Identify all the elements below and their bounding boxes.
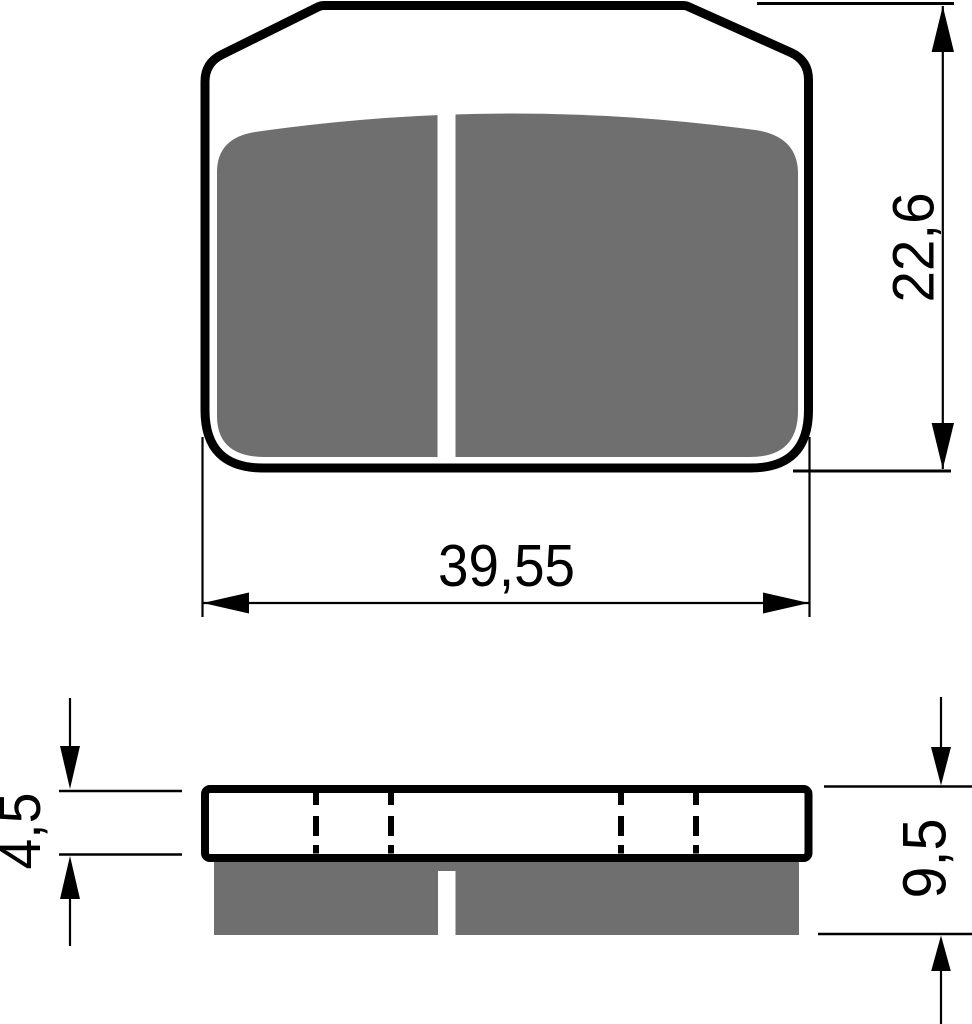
- svg-text:39,55: 39,55: [438, 533, 575, 599]
- svg-text:4,5: 4,5: [0, 793, 53, 870]
- svg-text:9,5: 9,5: [891, 819, 959, 899]
- svg-text:22,6: 22,6: [882, 193, 947, 303]
